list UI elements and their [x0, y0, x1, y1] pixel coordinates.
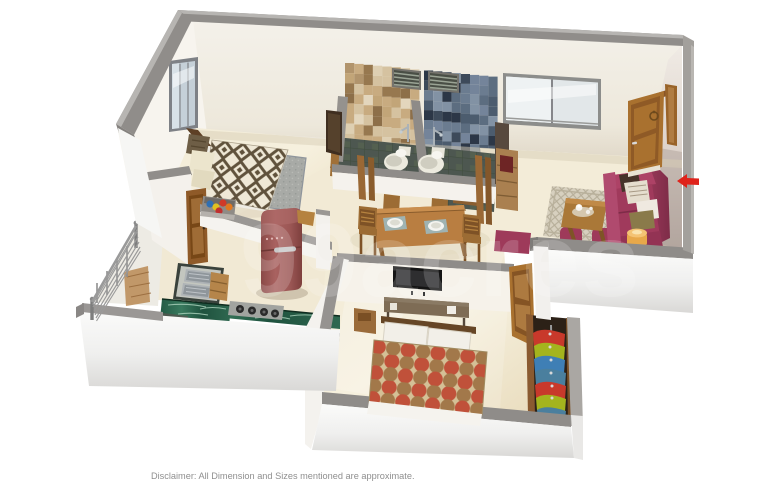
svg-text:Disclaimer: All Dimension and: Disclaimer: All Dimension and Sizes ment… — [151, 471, 415, 481]
svg-text:99acres: 99acres — [240, 203, 642, 319]
